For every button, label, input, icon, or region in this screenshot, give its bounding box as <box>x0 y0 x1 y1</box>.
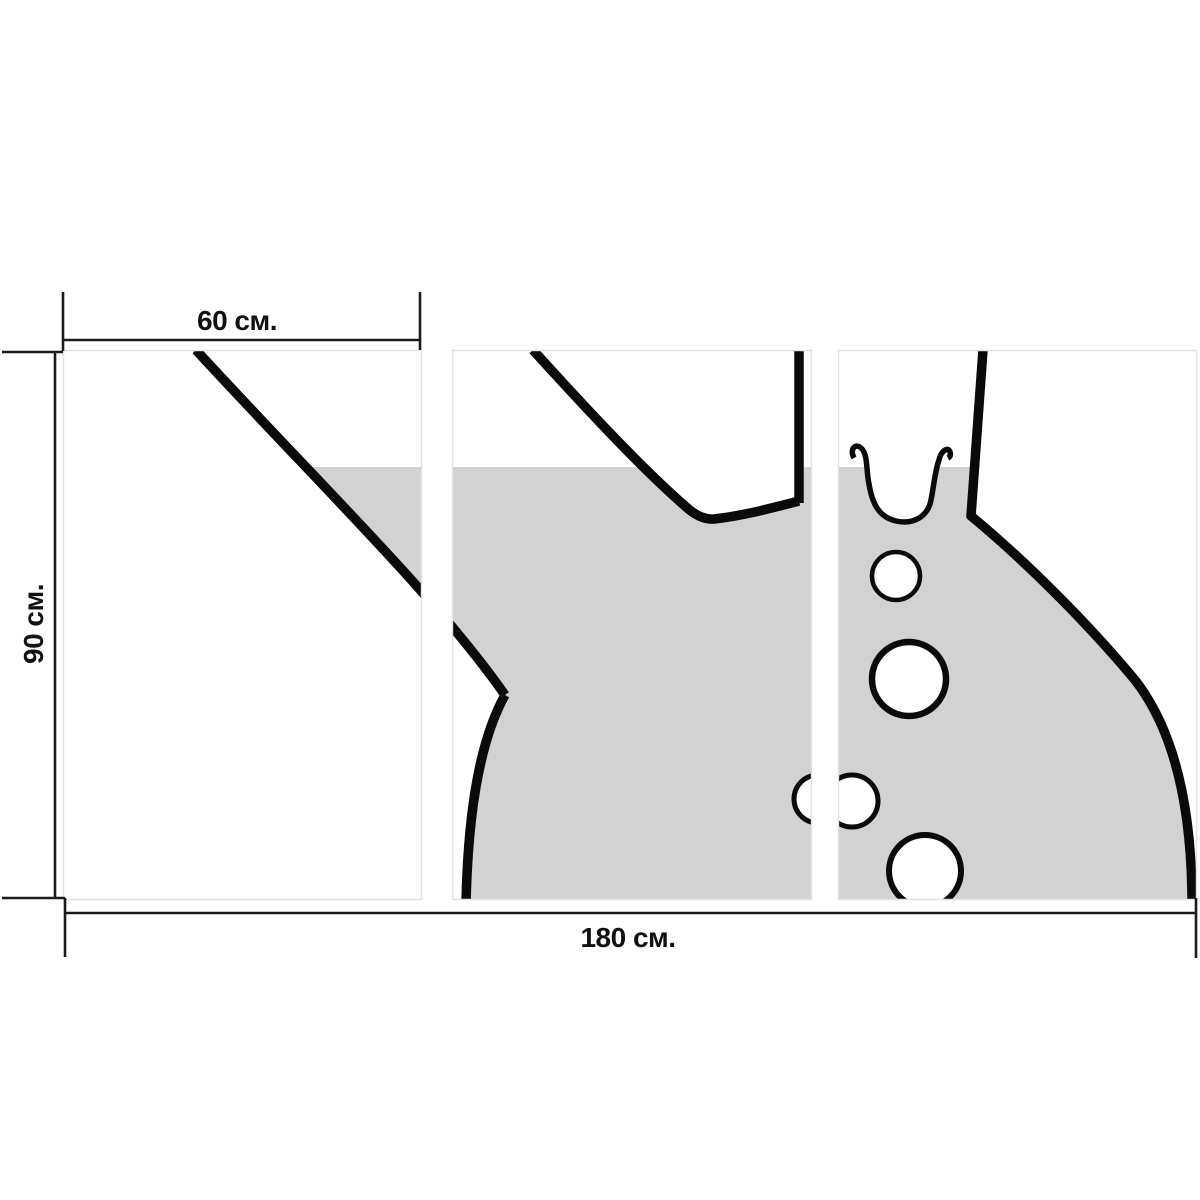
liquid-fill <box>196 350 1191 902</box>
flask-artwork <box>0 0 1200 1200</box>
gap-between-panel-1-2 <box>422 344 452 906</box>
bubble-bottom <box>889 835 961 907</box>
panel-width-dimension-label: 60 см. <box>197 305 277 337</box>
total-width-dimension-label: 180 см. <box>580 922 675 954</box>
mask-above-panels <box>0 0 1200 350</box>
bubble-small-upper <box>872 552 920 600</box>
panel-1-border <box>64 351 422 900</box>
height-dimension-label: 90 см. <box>18 584 50 664</box>
triptych-dimension-diagram: 60 см. 90 см. 180 см. <box>0 0 1200 1200</box>
bubble-large-middle <box>872 642 946 716</box>
gap-between-panel-2-3 <box>812 344 838 906</box>
